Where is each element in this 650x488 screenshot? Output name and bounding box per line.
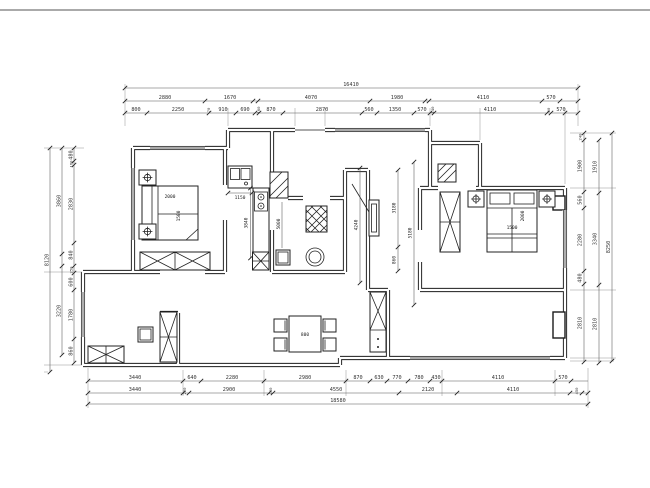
wall-notch-lower (553, 312, 565, 338)
dim-label: 60 (546, 107, 551, 112)
dim-label: 450 (574, 387, 579, 395)
dim-label: 8120 (45, 254, 51, 267)
dim-label: 2810 (593, 318, 599, 331)
dim-label: 2000 (520, 210, 526, 221)
window-living-bottom (410, 356, 550, 361)
window-roomb-left (81, 292, 86, 337)
dim-label: 130 (268, 387, 273, 395)
dim-label: 5180 (408, 227, 414, 238)
window-bedroom2-left (131, 168, 136, 240)
dim-label: 2120 (422, 387, 435, 393)
dim-label: 16410 (343, 82, 359, 88)
bedroom2-nightstand-bottom (139, 224, 156, 239)
dim-label: 430 (431, 375, 440, 381)
dim-label: 780 (414, 375, 423, 381)
dim-label: 570 (556, 107, 565, 113)
window-kitchen-top (335, 128, 425, 133)
bedroom2-wardrobe (140, 252, 210, 270)
dim-bottom-row1: 3440 640 2280 2980 870 630 770 780 430 4… (86, 375, 588, 383)
dim-label: 3340 (593, 233, 599, 246)
dim-top-row2: 2880 1670 4070 1980 4110 570 (123, 95, 580, 103)
roomb-side-table (138, 327, 153, 342)
dim-label: 3440 (129, 375, 142, 381)
dim-label: 2280 (578, 234, 584, 247)
dim-bottom-total: 18580 (86, 398, 590, 406)
dim-label: 18580 (330, 398, 346, 404)
dim-label: 3860 (57, 195, 63, 208)
dim-label: 3440 (129, 387, 142, 393)
dim-label: 1910 (593, 161, 599, 174)
dim-label: 840 (69, 250, 75, 259)
dim-label: 4070 (305, 95, 318, 101)
master-bed (487, 190, 537, 252)
dim-label: 4110 (484, 107, 497, 113)
dim-label: 160 (69, 160, 74, 168)
dim-right-inner: 240 1900 560 2280 480 2810 (578, 131, 587, 364)
hall-wardrobe (370, 292, 386, 352)
dim-label: 860 (69, 346, 75, 355)
dim-label: 2280 (226, 375, 239, 381)
dim-label: 2830 (69, 198, 75, 211)
master-nightstand-right (539, 191, 555, 207)
dim-label: 1350 (389, 107, 402, 113)
dim-label: 2000 (165, 194, 176, 200)
dim-left-total: 8120 (45, 146, 53, 374)
dim-label: 800 (301, 332, 309, 338)
furniture (88, 164, 555, 363)
dim-label: 770 (392, 375, 401, 381)
dim-label: 8250 (606, 241, 612, 254)
dim-label: 1150 (235, 195, 246, 201)
dim-label: 250 (69, 266, 74, 274)
dim-top-row3: 800 2250 70 910 690 160 870 2870 560 135… (123, 106, 580, 115)
dim-label: 4240 (354, 219, 360, 230)
bedroom2-nightstand-top (139, 170, 156, 185)
dim-label: 4110 (492, 375, 505, 381)
dim-label: 600 (69, 277, 75, 286)
dim-label: 2880 (159, 95, 172, 101)
dim-top-total: 16410 (123, 82, 580, 90)
dim-label: 240 (578, 133, 583, 141)
dim-label: 140 (430, 106, 435, 114)
kitchen-counter (253, 188, 269, 258)
bath-basin (306, 248, 324, 266)
dim-label: 3840 (244, 217, 250, 228)
dim-label: 2870 (316, 107, 329, 113)
dim-label: 160 (256, 106, 261, 114)
entry-column (270, 172, 288, 198)
dim-label: 1980 (391, 95, 404, 101)
dim-label: 870 (353, 375, 362, 381)
dim-label: 870 (266, 107, 275, 113)
dim-label: 640 (187, 375, 196, 381)
dim-label: 480 (578, 273, 584, 282)
dim-label: 4110 (477, 95, 490, 101)
dim-label: 1500 (176, 210, 182, 221)
dim-label: 2810 (578, 317, 584, 330)
dim-label: 3180 (392, 202, 398, 213)
dim-label: 570 (417, 107, 426, 113)
dim-label: 1500 (507, 225, 518, 231)
dim-label: 860 (392, 256, 398, 264)
roomb-low-cabinet (88, 346, 124, 363)
dim-label: 690 (240, 107, 249, 113)
dim-label: 1670 (224, 95, 237, 101)
master-nightstand-left (468, 191, 484, 207)
floor-plan-canvas: 16410 2880 1670 4070 1980 4110 570 800 2… (0, 0, 650, 488)
dim-right-mid: 1910 3340 2810 (593, 138, 602, 365)
dim-label: 630 (374, 375, 383, 381)
dim-label: 560 (364, 107, 373, 113)
dim-left-mid: 3860 3220 (57, 146, 65, 357)
dim-label: 70 (206, 107, 211, 112)
dim-label: 1780 (69, 309, 75, 322)
floor-plan-sheet: 16410 2880 1670 4070 1980 4110 570 800 2… (0, 0, 650, 488)
dim-bottom-row2: 3440 220 2900 130 4550 2120 4110 450 (86, 387, 590, 395)
master-wardrobe (440, 192, 460, 252)
dim-label: 570 (558, 375, 567, 381)
dim-label: 2980 (299, 375, 312, 381)
washing-machine (276, 250, 290, 265)
master-niche-column (438, 164, 456, 182)
dim-label: 560 (578, 195, 584, 204)
kitchen-cabinet (253, 252, 270, 270)
dim-label: 910 (218, 107, 227, 113)
window-master-right (563, 210, 568, 268)
window-bedroom2-top (150, 146, 205, 151)
dim-label: 4110 (507, 387, 520, 393)
roomb-wardrobe (160, 312, 177, 362)
dim-label: 2250 (172, 107, 185, 113)
dim-label: 800 (131, 107, 140, 113)
dim-label: 3220 (57, 305, 63, 318)
kitchen-sink (228, 166, 252, 188)
dim-label: 1900 (578, 160, 584, 173)
dim-label: 4550 (330, 387, 343, 393)
dim-left-inner: 480 160 2830 840 250 600 1780 860 (69, 146, 77, 365)
dim-label: 2900 (223, 387, 236, 393)
dim-label: 480 (69, 150, 75, 159)
dim-label: 5000 (276, 218, 282, 229)
dim-label: 220 (182, 387, 187, 395)
bath-shower (306, 206, 327, 232)
dim-label: 570 (546, 95, 555, 101)
dim-right-total: 8250 (606, 131, 614, 363)
